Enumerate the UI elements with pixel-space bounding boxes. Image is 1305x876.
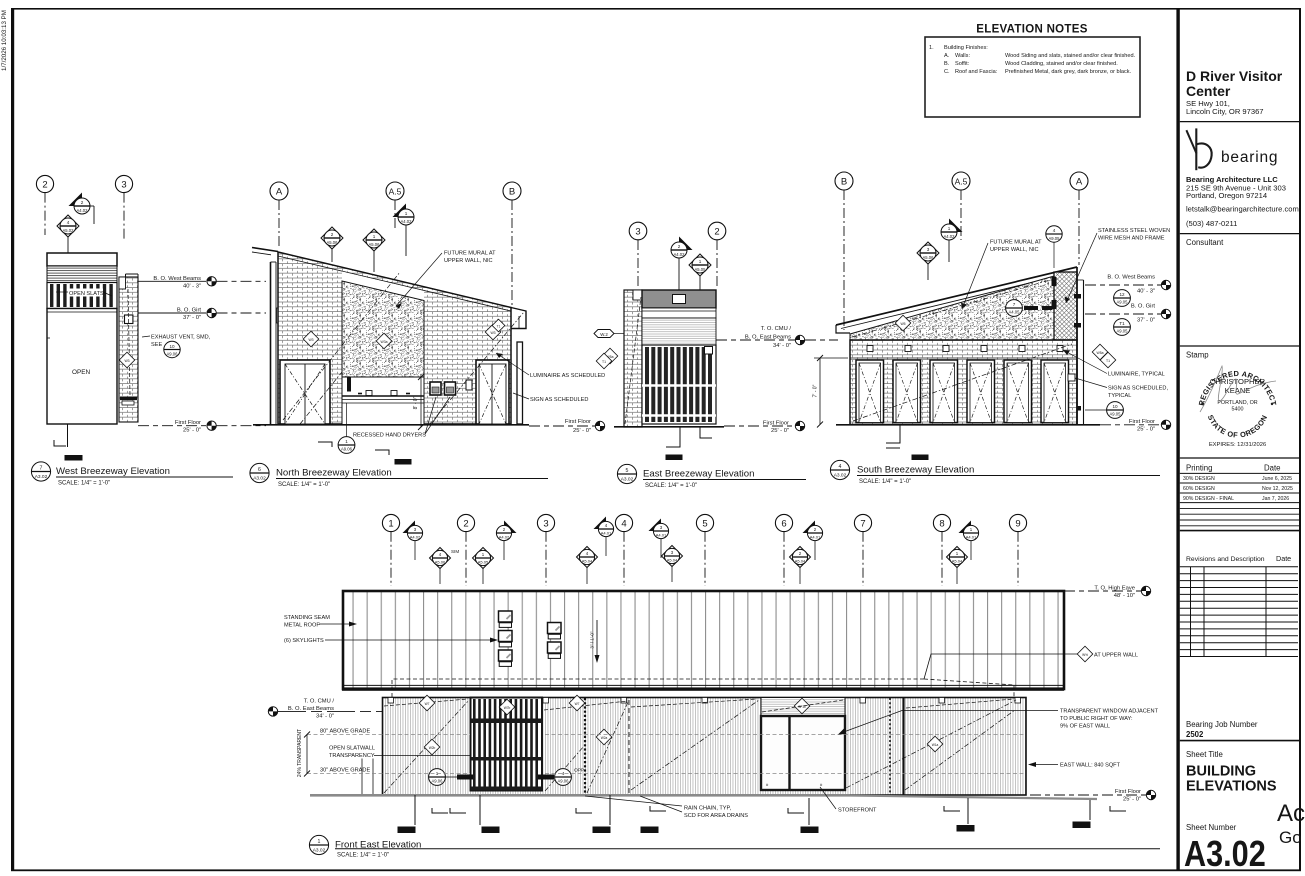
svg-text:First Floor: First Floor: [1129, 419, 1155, 425]
svg-text:1/7/2026 10:03:13 PM: 1/7/2026 10:03:13 PM: [1, 10, 8, 71]
svg-text:10: 10: [169, 344, 175, 349]
svg-text:48' - 10": 48' - 10": [1114, 593, 1135, 599]
svg-text:2: 2: [463, 519, 468, 530]
svg-text:W3: W3: [490, 331, 495, 335]
svg-text:2: 2: [81, 200, 84, 205]
svg-text:10: 10: [1112, 404, 1118, 409]
svg-text:W7b: W7b: [504, 706, 511, 710]
svg-text:34' - 0": 34' - 0": [773, 343, 791, 349]
svg-text:5: 5: [626, 468, 629, 474]
svg-text:A9.05: A9.05: [1049, 236, 1061, 241]
svg-text:2: 2: [714, 227, 719, 238]
svg-text:4: 4: [562, 771, 565, 776]
svg-text:W3a: W3a: [381, 340, 388, 344]
svg-text:Date: Date: [1264, 464, 1280, 473]
svg-text:1: 1: [345, 439, 348, 444]
svg-text:Lincoln City, OR 97367: Lincoln City, OR 97367: [1186, 107, 1264, 116]
svg-text:letstalk@bearingarchitecture.c: letstalk@bearingarchitecture.com: [1186, 205, 1299, 214]
svg-text:Soffit:: Soffit:: [955, 61, 970, 67]
svg-text:Wood Siding and slats, stained: Wood Siding and slats, stained and/or cl…: [1005, 53, 1136, 59]
svg-text:Act: Act: [1277, 800, 1305, 827]
svg-text:7: 7: [860, 519, 865, 530]
svg-text:EXPIRES: 12/31/2026: EXPIRES: 12/31/2026: [1209, 442, 1266, 448]
svg-text:W7: W7: [425, 702, 430, 706]
svg-text:A.5: A.5: [955, 177, 968, 187]
svg-text:A4.02: A4.02: [410, 535, 421, 540]
svg-text:Nov 12, 2025: Nov 12, 2025: [1262, 486, 1293, 492]
svg-text:A: A: [276, 187, 283, 198]
svg-text:OPEN SLATS: OPEN SLATS: [69, 291, 104, 297]
svg-text:A5.04: A5.04: [952, 559, 963, 564]
svg-text:1: 1: [388, 519, 393, 530]
svg-text:UPPER WALL, NIC: UPPER WALL, NIC: [990, 247, 1039, 253]
svg-text:A5.06: A5.06: [369, 242, 381, 247]
svg-text:AT UPPER WALL: AT UPPER WALL: [1094, 653, 1138, 659]
svg-text:37' - 0": 37' - 0": [183, 315, 201, 321]
svg-text:LUMINAIRE, TYPICAL: LUMINAIRE, TYPICAL: [1108, 372, 1165, 378]
svg-text:A4.02: A4.02: [499, 535, 510, 540]
svg-text:bearing: bearing: [1221, 149, 1278, 166]
svg-text:TRANSPARENT WINDOW ADJACENT: TRANSPARENT WINDOW ADJACENT: [1060, 709, 1159, 715]
svg-text:B: B: [841, 177, 847, 188]
svg-text:TO PUBLIC RIGHT OF WAY:: TO PUBLIC RIGHT OF WAY:: [1060, 716, 1133, 722]
svg-text:25' - 0": 25' - 0": [183, 428, 201, 434]
svg-text:1: 1: [373, 234, 376, 239]
svg-text:1: 1: [948, 226, 951, 231]
svg-text:40' - 3": 40' - 3": [183, 284, 201, 290]
svg-text:A3.02: A3.02: [253, 476, 266, 482]
svg-text:A.: A.: [944, 53, 950, 59]
svg-text:A4.02: A4.02: [944, 234, 956, 239]
svg-text:Walls:: Walls:: [955, 53, 970, 59]
svg-text:A3.02: A3.02: [1184, 834, 1266, 875]
svg-text:37' - 0": 37' - 0": [1137, 318, 1155, 324]
svg-text:4: 4: [839, 464, 842, 470]
svg-text:5400: 5400: [1232, 407, 1244, 413]
svg-text:SIGN AS SCHEDULED: SIGN AS SCHEDULED: [530, 397, 588, 403]
svg-text:WIRE MESH AND FRAME: WIRE MESH AND FRAME: [1098, 236, 1165, 242]
svg-text:SCALE: 1/4" = 1'-0": SCALE: 1/4" = 1'-0": [859, 479, 911, 485]
svg-text:B. O. Girt: B. O. Girt: [1131, 304, 1156, 310]
svg-text:W2a: W2a: [601, 736, 608, 740]
svg-text:A9.06: A9.06: [432, 779, 444, 784]
svg-text:2502: 2502: [1186, 730, 1204, 739]
svg-text:A3.02: A3.02: [313, 848, 326, 854]
svg-text:3: 3: [635, 227, 640, 238]
svg-text:A9.06: A9.06: [341, 447, 353, 452]
svg-text:W3: W3: [308, 338, 313, 342]
svg-text:Bearing Job Number: Bearing Job Number: [1186, 720, 1258, 729]
svg-text:(503) 487-0211: (503) 487-0211: [1186, 219, 1237, 228]
svg-text:B: B: [509, 187, 515, 198]
svg-text:A5.05: A5.05: [478, 560, 489, 565]
svg-text:3" / 1'-0": 3" / 1'-0": [590, 631, 595, 649]
svg-text:12: 12: [1119, 292, 1125, 297]
svg-text:A4.02: A4.02: [401, 219, 413, 224]
svg-text:A9.06: A9.06: [167, 352, 179, 357]
svg-text:SCD FOR AREA DRAINS: SCD FOR AREA DRAINS: [684, 813, 748, 819]
svg-text:7' - 0": 7' - 0": [813, 384, 819, 397]
svg-text:A4.02: A4.02: [674, 252, 686, 257]
svg-text:OPEN SLATWALL: OPEN SLATWALL: [329, 746, 375, 752]
svg-text:A5.04: A5.04: [795, 559, 806, 564]
svg-text:25' - 0": 25' - 0": [1123, 797, 1141, 803]
svg-text:A.5: A.5: [389, 187, 402, 197]
svg-text:SIGN AS SCHEDULED,: SIGN AS SCHEDULED,: [1108, 386, 1168, 392]
svg-text:A5.06: A5.06: [327, 240, 339, 245]
svg-text:OPEN: OPEN: [72, 369, 90, 376]
svg-text:SCALE: 1/4" = 1'-0": SCALE: 1/4" = 1'-0": [645, 483, 697, 489]
svg-text:3: 3: [927, 247, 930, 252]
svg-text:A9.05: A9.05: [1117, 300, 1129, 305]
svg-text:West Breezeway Elevation: West Breezeway Elevation: [56, 466, 170, 477]
svg-text:9: 9: [1015, 519, 1020, 530]
svg-text:Consultant: Consultant: [1186, 238, 1224, 247]
svg-text:B. O. West Beams: B. O. West Beams: [1107, 275, 1155, 281]
svg-text:FUTURE MURAL AT: FUTURE MURAL AT: [990, 240, 1042, 246]
svg-text:A5.06: A5.06: [435, 560, 446, 565]
svg-text:EAST WALL: 840 SQFT: EAST WALL: 840 SQFT: [1060, 763, 1121, 769]
svg-text:6: 6: [781, 519, 786, 530]
svg-text:1: 1: [699, 259, 702, 264]
svg-text:60% DESIGN: 60% DESIGN: [1183, 486, 1215, 492]
svg-text:South Breezeway Elevation: South Breezeway Elevation: [857, 465, 974, 476]
svg-text:Portland, Oregon 97214: Portland, Oregon 97214: [1186, 191, 1267, 200]
svg-text:(6) SKYLIGHTS: (6) SKYLIGHTS: [284, 638, 324, 644]
svg-text:Roof and Fascia:: Roof and Fascia:: [955, 69, 998, 75]
svg-text:A5.06: A5.06: [923, 255, 935, 260]
svg-text:1: 1: [318, 839, 321, 845]
svg-text:W5a: W5a: [1097, 351, 1104, 355]
svg-text:METAL ROOF: METAL ROOF: [284, 623, 320, 629]
svg-text:SCALE: 1/4" = 1'-0": SCALE: 1/4" = 1'-0": [278, 482, 330, 488]
svg-text:EXHAUST VENT, SMD,: EXHAUST VENT, SMD,: [151, 335, 211, 341]
svg-text:SEE: SEE: [151, 342, 162, 348]
svg-text:8' - 0": 8' - 0": [413, 396, 419, 409]
svg-text:TRANSPARENCY: TRANSPARENCY: [329, 753, 375, 759]
svg-text:2: 2: [42, 180, 47, 191]
svg-text:Printing: Printing: [1186, 464, 1212, 473]
svg-text:25' - 0": 25' - 0": [1137, 427, 1155, 433]
svg-text:2: 2: [678, 244, 681, 249]
svg-text:Sheet Title: Sheet Title: [1186, 750, 1223, 759]
svg-text:A4.01: A4.01: [601, 531, 612, 536]
svg-text:RECESSED HAND DRYERS: RECESSED HAND DRYERS: [353, 433, 426, 439]
svg-text:9% OF EAST WALL: 9% OF EAST WALL: [1060, 724, 1110, 730]
svg-text:A5.04: A5.04: [667, 558, 678, 563]
svg-text:W7: W7: [575, 702, 580, 706]
svg-text:A9.06: A9.06: [558, 779, 570, 784]
svg-text:First Floor: First Floor: [1115, 789, 1141, 795]
svg-text:A5.05: A5.05: [695, 267, 707, 272]
svg-text:T. O. CMU /: T. O. CMU /: [304, 699, 335, 705]
svg-text:OPP: OPP: [574, 768, 584, 774]
svg-text:W1a: W1a: [932, 743, 939, 747]
svg-text:25' - 0": 25' - 0": [573, 428, 591, 434]
svg-text:3: 3: [121, 180, 126, 191]
svg-text:6: 6: [258, 467, 261, 473]
svg-text:Wood Cladding, stained and/or: Wood Cladding, stained and/or clear fini…: [1005, 61, 1118, 67]
svg-text:A9.05: A9.05: [1110, 412, 1122, 417]
svg-text:30% DESIGN: 30% DESIGN: [1183, 476, 1215, 482]
svg-text:A3.02: A3.02: [35, 474, 48, 480]
svg-text:25' - 0": 25' - 0": [771, 428, 789, 434]
svg-text:A9.05: A9.05: [1117, 329, 1129, 334]
svg-text:Go t: Go t: [1279, 828, 1305, 847]
svg-text:KEANE: KEANE: [1225, 386, 1251, 395]
svg-text:A4.01: A4.01: [656, 533, 667, 538]
svg-text:24% TRANSPARENT: 24% TRANSPARENT: [297, 729, 303, 777]
svg-text:Revisions and Description: Revisions and Description: [1186, 556, 1265, 563]
svg-text:8: 8: [939, 519, 944, 530]
svg-text:90% DESIGN - FINAL: 90% DESIGN - FINAL: [1183, 496, 1234, 502]
svg-text:4: 4: [1053, 228, 1056, 233]
svg-text:June 6, 2025: June 6, 2025: [1262, 476, 1292, 482]
svg-text:W%: W%: [1082, 653, 1088, 657]
svg-text:7: 7: [1013, 302, 1016, 307]
svg-text:2: 2: [331, 232, 334, 237]
svg-text:5: 5: [702, 519, 707, 530]
svg-text:First Floor: First Floor: [175, 420, 201, 426]
svg-text:80" ABOVE GRADE: 80" ABOVE GRADE: [320, 729, 370, 735]
svg-text:40' - 3": 40' - 3": [1137, 289, 1155, 295]
svg-text:D River Visitor: D River Visitor: [1186, 68, 1283, 84]
svg-text:34' - 0": 34' - 0": [316, 714, 334, 720]
svg-text:T1: T1: [602, 360, 606, 364]
svg-text:Prefinished Metal, dark grey,: Prefinished Metal, dark grey, dark bronz…: [1005, 69, 1132, 75]
svg-text:STANDING SEAM: STANDING SEAM: [284, 615, 330, 621]
svg-text:Date: Date: [1276, 554, 1291, 563]
svg-text:RAIN CHAIN, TYP,: RAIN CHAIN, TYP,: [684, 806, 731, 812]
svg-text:East Breezeway Elevation: East Breezeway Elevation: [643, 469, 754, 480]
svg-text:30" ABOVE GRADE: 30" ABOVE GRADE: [320, 768, 370, 774]
svg-text:A4.01: A4.01: [966, 535, 977, 540]
svg-text:First Floor: First Floor: [565, 419, 591, 425]
svg-text:A: A: [1076, 177, 1083, 188]
svg-text:T1: T1: [1119, 321, 1125, 326]
svg-text:A5.02: A5.02: [63, 228, 75, 233]
svg-text:STOREFRONT: STOREFRONT: [838, 808, 877, 814]
svg-text:Building Finishes:: Building Finishes:: [944, 45, 988, 51]
svg-text:LUMINAIRE AS SCHEDULED: LUMINAIRE AS SCHEDULED: [530, 373, 605, 379]
svg-text:W2b: W2b: [429, 746, 436, 750]
svg-text:UPPER WALL, NIC: UPPER WALL, NIC: [444, 258, 493, 264]
svg-text:SCALE: 1/4" = 1'-0": SCALE: 1/4" = 1'-0": [337, 853, 389, 859]
svg-text:Sheet Number: Sheet Number: [1186, 823, 1237, 832]
svg-text:STAINLESS STEEL WOVEN: STAINLESS STEEL WOVEN: [1098, 228, 1170, 234]
svg-text:CHRISTOPHER: CHRISTOPHER: [1210, 377, 1266, 386]
svg-text:ELEVATIONS: ELEVATIONS: [1186, 779, 1277, 795]
svg-text:Center: Center: [1186, 83, 1231, 99]
svg-text:PORTLAND, OR: PORTLAND, OR: [1217, 400, 1257, 406]
svg-text:Stamp: Stamp: [1186, 351, 1209, 360]
svg-text:A5.04: A5.04: [582, 559, 593, 564]
svg-text:SCALE: 1/4" = 1'-0": SCALE: 1/4" = 1'-0": [58, 481, 110, 487]
svg-text:3: 3: [543, 519, 548, 530]
svg-text:SIM: SIM: [451, 549, 459, 554]
svg-text:W.2: W.2: [600, 332, 608, 337]
svg-text:A4.01: A4.01: [810, 535, 821, 540]
svg-text:C.: C.: [944, 69, 950, 75]
svg-text:T1: T1: [1106, 359, 1110, 363]
svg-text:Jan 7, 2026: Jan 7, 2026: [1262, 496, 1289, 502]
svg-text:1.: 1.: [929, 45, 934, 51]
svg-text:7: 7: [40, 466, 43, 472]
svg-text:T1: T1: [497, 325, 501, 329]
svg-text:FUTURE MURAL AT: FUTURE MURAL AT: [444, 251, 496, 257]
svg-text:B.: B.: [944, 61, 950, 67]
svg-text:BUILDING: BUILDING: [1186, 764, 1256, 780]
svg-text:4: 4: [621, 519, 626, 530]
svg-text:TYPICAL: TYPICAL: [1108, 393, 1131, 399]
svg-text:4: 4: [67, 220, 70, 225]
svg-text:A3.02: A3.02: [621, 477, 634, 483]
svg-text:A4.02: A4.02: [77, 208, 89, 213]
svg-text:T. O. CMU /: T. O. CMU /: [761, 326, 792, 332]
svg-text:ELEVATION NOTES: ELEVATION NOTES: [976, 24, 1087, 36]
svg-text:1: 1: [405, 211, 408, 216]
svg-text:W3: W3: [124, 359, 129, 363]
svg-text:W5: W5: [900, 322, 905, 326]
svg-text:North Breezeway Elevation: North Breezeway Elevation: [276, 468, 392, 479]
svg-text:A3.02: A3.02: [834, 473, 847, 479]
svg-text:A4.05: A4.05: [1009, 310, 1021, 315]
